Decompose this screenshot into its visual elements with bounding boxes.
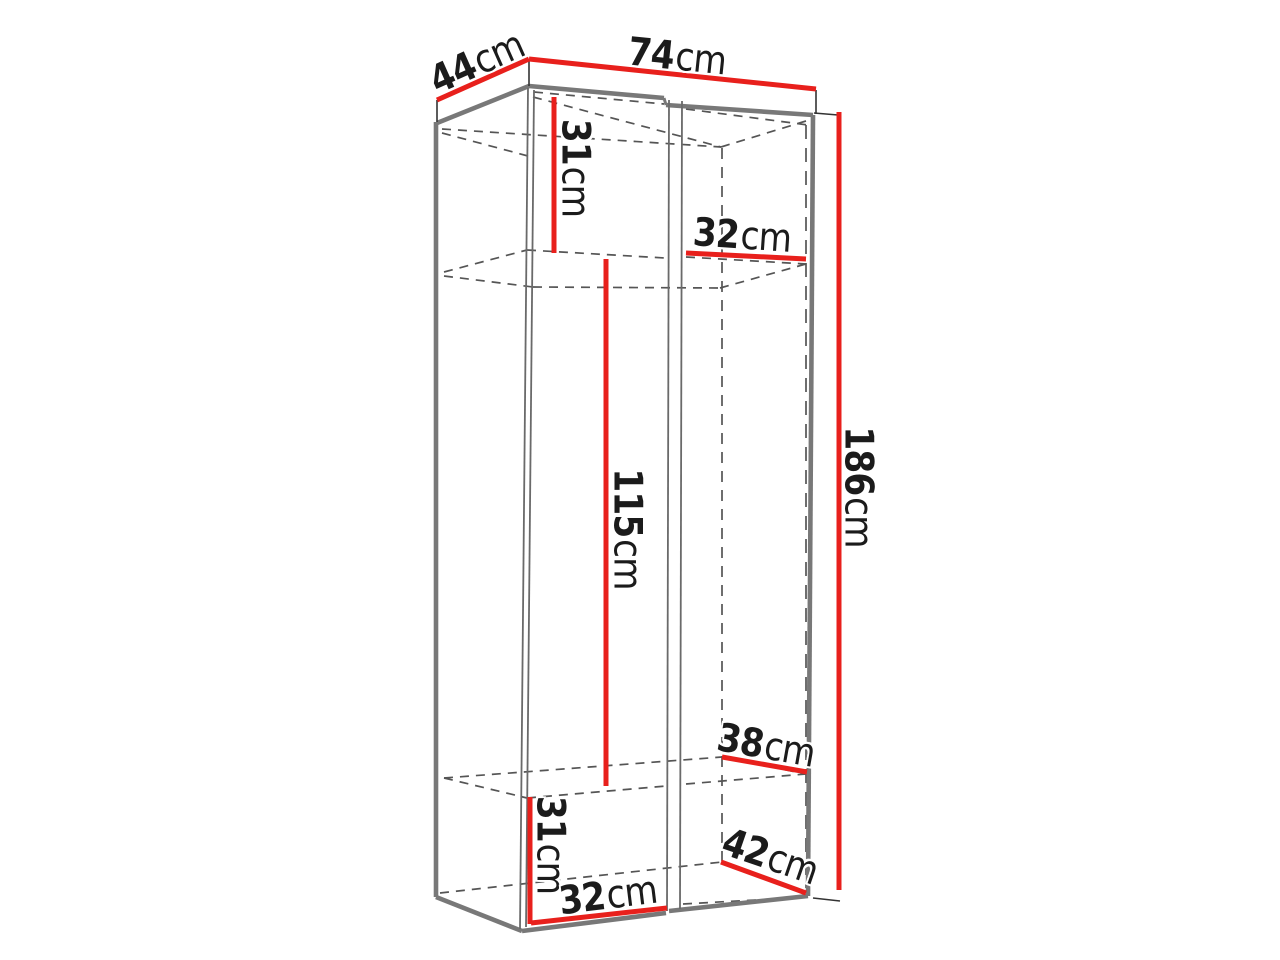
dim-unit: cm [553,167,598,218]
dim-label-lower-section-width: 32cm [557,871,659,922]
hidden-edge [442,133,528,156]
upper-shelf-edge [527,250,665,258]
side-bottom-edge [436,897,522,931]
dim-value: 31 [553,119,598,165]
dim-value: 115 [605,468,650,537]
hidden-edge [721,121,806,147]
dim-value: 74 [626,29,676,79]
dim-label-top-width: 74cm [626,32,728,81]
dim-value: 32 [691,210,740,258]
dim-unit: cm [673,34,728,84]
upper-shelf-edge [533,287,720,288]
dim-unit: cm [739,213,793,261]
lower-shelf-edge [444,778,527,798]
dim-unit: cm [761,724,819,777]
dim-value: 38 [714,715,767,767]
dim-label-upper-section-height: 31cm [556,119,595,217]
door-divider-edge [667,100,669,911]
dim-label-upper-shelf-width: 32cm [692,213,793,259]
lower-shelf-edge [686,774,806,784]
dim-label-middle-section-height: 115cm [608,468,647,589]
front-right-corner [808,115,813,896]
upper-shelf-edge [444,276,533,287]
dim-unit: cm [604,868,660,919]
front-top-step [664,98,666,105]
dim-unit: cm [836,497,881,548]
dim-label-overall-height: 186cm [839,426,878,547]
dim-value: 31 [528,796,573,842]
extension-tick [813,898,840,901]
door-divider-edge [680,101,682,909]
dim-value: 32 [556,874,607,924]
dim-unit: cm [605,539,650,590]
front-top-edge [529,86,664,98]
dim-value: 186 [836,426,881,495]
wardrobe-dimension-diagram: 44cm 74cm 31cm 32cm 115cm 186cm 38cm 31c… [0,0,1280,960]
upper-shelf-edge [720,264,806,288]
upper-shelf-edge [444,250,527,272]
extension-tick [814,113,838,115]
